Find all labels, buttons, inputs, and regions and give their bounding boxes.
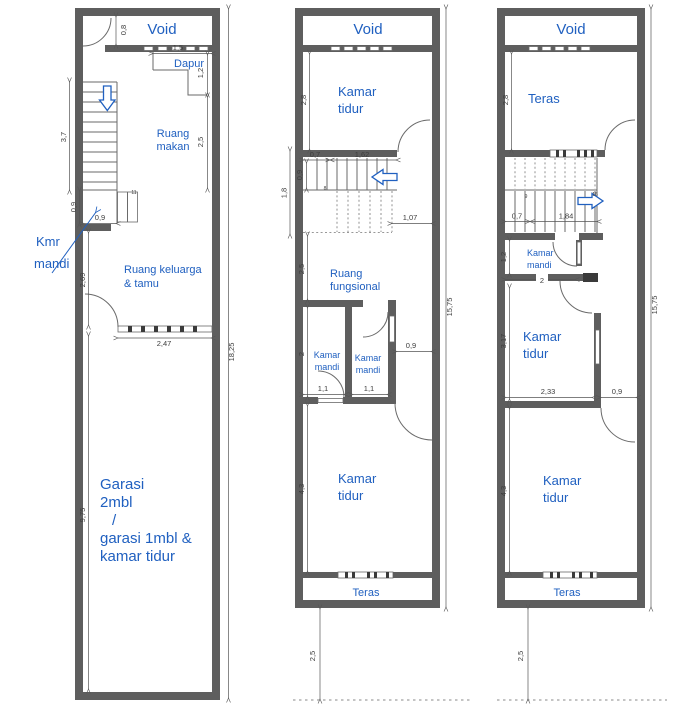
dim-dapur-width: 1,5 bbox=[173, 43, 183, 52]
dim-keluarga-height: 2,69 bbox=[78, 273, 87, 288]
dim-setback: 2,5 bbox=[516, 651, 525, 661]
dim-tidur-bawah-height: 4,3 bbox=[499, 486, 508, 496]
bedroom-mid-door-arc bbox=[560, 281, 592, 313]
bedroom-bottom-door-arc bbox=[395, 403, 432, 440]
room-label-tidur-tengah-2: tidur bbox=[523, 346, 549, 361]
room-label-tidur-atas-1: Kamar bbox=[338, 84, 377, 99]
room-label-void: Void bbox=[147, 21, 176, 38]
room-label-mandi-2: mandi bbox=[527, 260, 552, 270]
bedroom-bottom-door-arc bbox=[601, 408, 635, 442]
family-room-door-arc bbox=[85, 294, 118, 327]
room-label-teras-bawah: Teras bbox=[554, 587, 581, 599]
room-label-tidur-atas-2: tidur bbox=[338, 101, 364, 116]
dim-mandi-width: 2 bbox=[540, 276, 544, 285]
entry-door-arc bbox=[83, 18, 111, 46]
dim-stairs-height: 3,7 bbox=[59, 132, 68, 142]
dim-tidur-tengah-height: 3,17 bbox=[499, 334, 508, 349]
dim-total-height: 15,75 bbox=[650, 296, 659, 315]
bathroom-right-door-arc bbox=[363, 312, 388, 337]
dim-stairs-width: 0,9 bbox=[295, 170, 304, 180]
room-label-kmr-mandi-2: mandi bbox=[34, 256, 70, 271]
plan3-bathroom-walls bbox=[505, 233, 603, 282]
dim-tidur-height: 2,8 bbox=[299, 95, 308, 105]
plan3-exterior-walls bbox=[497, 8, 645, 608]
room-label-tidur-bawah-2: tidur bbox=[543, 490, 569, 505]
dim-stairs-b: 1,62 bbox=[355, 150, 370, 159]
plan3-teras-stair-wall bbox=[505, 150, 605, 157]
dim-stairs-bay: 1,8 bbox=[280, 188, 289, 198]
room-label-ruang-makan-1: Ruang bbox=[157, 128, 189, 140]
room-label-mandi-kiri-1: Kamar bbox=[314, 350, 341, 360]
room-label-garasi-3: / bbox=[112, 512, 117, 529]
room-label-void: Void bbox=[353, 21, 382, 38]
stairs-direction-arrow-right bbox=[578, 194, 603, 209]
stair-count-label: 8 bbox=[324, 186, 327, 192]
floor-plan-middle: 2,8 0,7 1,62 0,9 1,8 1,07 2,5 2 1,1 1,1 … bbox=[280, 8, 474, 700]
room-label-garasi-5: kamar tidur bbox=[100, 548, 175, 565]
room-label-mandi-kiri-2: mandi bbox=[315, 362, 340, 372]
dim-total-height: 15,75 bbox=[445, 298, 454, 317]
room-label-mandi-kanan-1: Kamar bbox=[355, 353, 382, 363]
room-label-kmr-mandi-1: Kmr bbox=[36, 234, 61, 249]
dim-stairs-b: 1,84 bbox=[559, 212, 574, 221]
dim-stairs-a: 0,7 bbox=[512, 212, 522, 221]
plan3-teras-wall bbox=[497, 572, 645, 578]
dim-tidur-bawah-height: 4,3 bbox=[297, 484, 306, 494]
room-label-teras: Teras bbox=[353, 587, 380, 599]
plan2-void-wall bbox=[303, 45, 432, 52]
room-label-fungsional-2: fungsional bbox=[330, 281, 380, 293]
dim-mandi-kanan-width: 1,1 bbox=[364, 384, 374, 393]
room-label-tidur-tengah-1: Kamar bbox=[523, 329, 562, 344]
room-label-mandi-1: Kamar bbox=[527, 248, 554, 258]
room-label-ruang-makan-2: makan bbox=[156, 141, 189, 153]
stair-count-top: 16 bbox=[592, 192, 598, 198]
bathroom-door-arc bbox=[553, 242, 577, 266]
teras-door-arc bbox=[605, 120, 635, 150]
dim-koridor-width: 0,9 bbox=[406, 341, 416, 350]
room-label-tidur-bawah-1: Kamar bbox=[338, 471, 377, 486]
understairs-closet bbox=[118, 192, 138, 222]
dim-kmr-width: 0,9 bbox=[95, 213, 105, 222]
room-label-tidur-bawah-1: Kamar bbox=[543, 473, 582, 488]
room-label-garasi-4: garasi 1mbl & bbox=[100, 530, 192, 547]
dim-keluarga-width: 2,47 bbox=[157, 339, 172, 348]
dim-mandi-height: 1,2 bbox=[499, 252, 508, 262]
stairs-direction-arrow-left bbox=[372, 170, 397, 185]
floor-plan-right: 2,8 0,7 1,84 1,2 2 3,17 2,33 0,9 4,3 15,… bbox=[497, 8, 667, 700]
room-label-garasi-2: 2mbl bbox=[100, 494, 133, 511]
floor-plan-left: 0,8 1,5 1,2 2,5 3,7 0,9 0,9 2,69 2,47 9,… bbox=[34, 8, 236, 700]
room-label-keluarga-1: Ruang keluarga bbox=[124, 264, 203, 276]
dim-fungsional-height: 2,5 bbox=[297, 264, 306, 274]
room-label-dapur: Dapur bbox=[174, 58, 204, 70]
plan3-void-wall bbox=[505, 45, 637, 52]
room-label-teras-atas: Teras bbox=[528, 91, 560, 106]
room-label-fungsional-1: Ruang bbox=[330, 268, 362, 280]
room-label-void: Void bbox=[556, 21, 585, 38]
stairs-dashed bbox=[515, 158, 595, 189]
dim-landing: 1,07 bbox=[403, 213, 418, 222]
plan1-void-wall bbox=[105, 45, 212, 52]
dim-teras-height: 2,8 bbox=[501, 95, 510, 105]
room-label-mandi-kanan-2: mandi bbox=[356, 365, 381, 375]
dim-kmr-height: 0,9 bbox=[69, 202, 78, 212]
dim-mandi-kiri-width: 1,1 bbox=[318, 384, 328, 393]
room-label-keluarga-2: & tamu bbox=[124, 278, 159, 290]
bedroom-top-door-arc bbox=[398, 120, 430, 152]
floorplan-drawing: 0,8 1,5 1,2 2,5 3,7 0,9 0,9 2,69 2,47 9,… bbox=[0, 0, 688, 720]
dim-total-height: 18,25 bbox=[227, 343, 236, 362]
dim-setback: 2,5 bbox=[308, 651, 317, 661]
plan1-garage-wall bbox=[118, 326, 212, 332]
floorplan-sheet: 0,8 1,5 1,2 2,5 3,7 0,9 0,9 2,69 2,47 9,… bbox=[0, 0, 688, 720]
dim-mandi-height: 2 bbox=[297, 352, 306, 356]
plan2-teras-wall bbox=[303, 572, 432, 578]
dim-makan-height: 2,5 bbox=[196, 137, 205, 147]
stairs-up-dashed bbox=[303, 191, 392, 233]
dim-void-height: 0,8 bbox=[119, 25, 128, 35]
stair-count-mid: 9 bbox=[525, 194, 528, 200]
room-label-tidur-bawah-2: tidur bbox=[338, 488, 364, 503]
room-label-garasi-1: Garasi bbox=[100, 476, 144, 493]
dim-tidur-tengah-width: 2,33 bbox=[541, 387, 556, 396]
dim-stairs-a: 0,7 bbox=[310, 150, 320, 159]
dim-garasi-height: 9,75 bbox=[78, 508, 87, 523]
dim-koridor-width: 0,9 bbox=[612, 387, 622, 396]
stair-count-label: 11 bbox=[131, 190, 136, 196]
stairs-direction-arrow-down bbox=[100, 86, 116, 111]
